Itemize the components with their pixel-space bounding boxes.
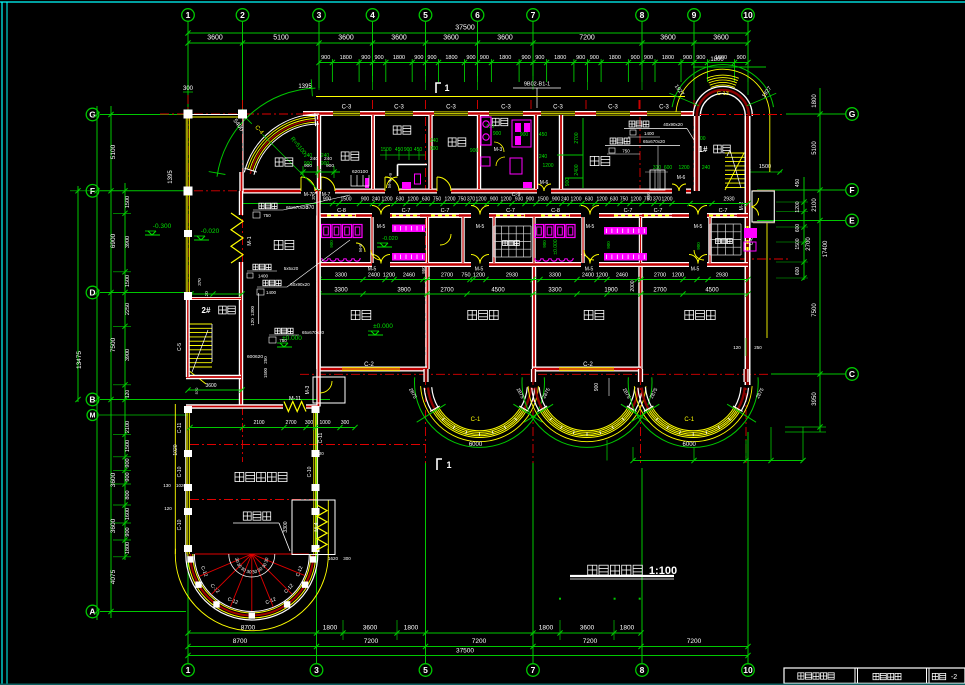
svg-text:1200: 1200 [444,197,455,203]
svg-text:M-1: M-1 [247,236,253,245]
svg-text:3300: 3300 [335,273,347,279]
svg-text:C-3: C-3 [394,105,404,111]
svg-text:3300: 3300 [283,521,289,532]
svg-text:630: 630 [610,197,619,203]
svg-text:900: 900 [430,146,439,152]
svg-text:±0.000: ±0.000 [553,239,559,254]
svg-text:3900: 3900 [125,236,131,248]
svg-text:6000: 6000 [683,442,697,448]
svg-text:240: 240 [702,165,711,171]
svg-text:900: 900 [535,55,544,61]
svg-text:240: 240 [539,154,548,160]
svg-text:40x90x20: 40x90x20 [663,122,683,127]
svg-text:370: 370 [467,197,476,203]
svg-text:M-6: M-6 [358,244,363,252]
svg-text:1800: 1800 [499,55,511,61]
svg-text:1200: 1200 [383,273,395,279]
svg-text:1800: 1800 [812,94,818,108]
svg-text:900: 900 [404,147,413,153]
svg-text:4500: 4500 [705,288,719,294]
svg-text:630: 630 [585,197,594,203]
svg-text:1: 1 [446,460,451,470]
svg-text:600620: 600620 [247,354,263,360]
svg-text:1: 1 [186,10,191,20]
svg-text:G: G [849,109,856,119]
svg-text:2100: 2100 [253,420,264,426]
svg-text:5x5x20: 5x5x20 [284,266,299,271]
svg-text:800: 800 [125,490,131,499]
svg-text:1800: 1800 [340,55,352,61]
svg-text:1800: 1800 [393,55,405,61]
svg-text:C-3: C-3 [608,105,618,111]
svg-text:240: 240 [304,153,313,159]
svg-text:C-3: C-3 [659,105,669,111]
svg-text:1500: 1500 [125,275,131,287]
svg-text:6900: 6900 [110,233,117,248]
svg-text:930: 930 [515,197,524,203]
svg-text:C-10: C-10 [177,519,183,530]
svg-text:1800: 1800 [404,625,419,632]
svg-text:C-7: C-7 [719,208,728,214]
svg-text:C: C [849,369,855,379]
svg-text:900: 900 [522,55,531,61]
svg-text:2930: 2930 [716,273,728,279]
svg-text:1020: 1020 [173,444,179,455]
svg-text:240: 240 [372,197,381,203]
svg-text:2930: 2930 [723,197,734,203]
svg-text:4075: 4075 [110,569,117,584]
svg-text:750: 750 [263,213,271,218]
svg-text:C-8: C-8 [551,208,560,214]
svg-text:1500: 1500 [263,367,268,378]
svg-text:1500: 1500 [340,197,351,203]
svg-text:1800: 1800 [609,55,621,61]
svg-text:900: 900 [490,197,499,203]
svg-text:2930: 2930 [506,273,518,279]
svg-text:2250: 2250 [125,303,131,315]
svg-text:900: 900 [466,55,475,61]
svg-text:7200: 7200 [364,638,379,645]
svg-text:3600: 3600 [110,472,117,487]
svg-text:300: 300 [343,556,351,561]
svg-text:9B02-B1-1: 9B02-B1-1 [524,82,550,88]
svg-text:1200: 1200 [672,273,684,279]
svg-text:3900: 3900 [397,288,411,294]
svg-text:900: 900 [493,131,502,137]
svg-text:1800: 1800 [125,542,131,554]
svg-text:450: 450 [539,132,548,138]
svg-text:M-3: M-3 [305,385,311,394]
svg-text:3600: 3600 [205,383,216,389]
svg-text:5100: 5100 [110,144,117,159]
svg-text:3600: 3600 [207,35,223,42]
svg-text:2400: 2400 [368,273,380,279]
svg-text:3900: 3900 [125,349,131,361]
svg-text:120: 120 [125,390,131,399]
svg-text:M-6: M-6 [677,175,686,181]
svg-text:M-5: M-5 [694,224,703,230]
svg-text:10: 10 [743,10,753,20]
svg-text:3300: 3300 [549,273,561,279]
svg-text:1200: 1200 [407,197,418,203]
svg-text:900: 900 [542,240,547,248]
svg-text:600: 600 [795,267,801,276]
svg-text:65x670x20: 65x670x20 [643,139,666,144]
svg-text:3300: 3300 [334,288,348,294]
svg-text:3600: 3600 [391,35,407,42]
svg-text:900: 900 [644,55,653,61]
svg-text:900: 900 [361,55,370,61]
svg-text:3600: 3600 [660,35,676,42]
svg-text:M-5: M-5 [377,224,386,230]
svg-text:900: 900 [594,383,600,392]
svg-text:C-7: C-7 [654,208,663,214]
svg-text:900: 900 [125,472,131,481]
svg-text:C-7: C-7 [506,208,515,214]
svg-text:M-6: M-6 [540,180,549,186]
svg-text:2700: 2700 [806,237,812,251]
svg-text:900: 900 [321,161,330,167]
svg-text:1200: 1200 [596,197,607,203]
svg-text:2700: 2700 [440,288,454,294]
svg-text:A: A [89,607,95,617]
svg-text:1620: 1620 [328,556,339,561]
svg-text:C-11: C-11 [177,423,183,434]
svg-text:-0.020: -0.020 [382,236,398,242]
svg-text:17400: 17400 [823,240,829,257]
svg-text:300: 300 [183,86,194,92]
svg-text:900: 900 [696,242,701,250]
svg-text:2460: 2460 [403,273,415,279]
svg-text:1900: 1900 [604,288,618,294]
svg-text:1: 1 [444,83,449,93]
svg-text:1600: 1600 [125,508,131,520]
svg-text:M-9: M-9 [388,173,393,181]
svg-text:2100: 2100 [125,421,131,433]
svg-text:1500: 1500 [125,196,131,208]
svg-text:2100: 2100 [812,198,818,212]
svg-text:120: 120 [164,506,172,511]
svg-text:900: 900 [590,55,599,61]
svg-text:370: 370 [653,197,662,203]
svg-text:C-10: C-10 [177,466,183,477]
svg-text:1500: 1500 [795,238,801,249]
svg-text:2: 2 [240,10,245,20]
svg-text:3600: 3600 [110,518,117,533]
svg-text:G: G [89,110,96,120]
svg-text:240: 240 [561,197,570,203]
svg-text:3600: 3600 [580,625,595,632]
svg-text:7: 7 [531,10,536,20]
svg-text:C-8: C-8 [337,208,346,214]
svg-text:65x670x20: 65x670x20 [302,330,325,335]
svg-text:C-13: C-13 [717,91,729,97]
svg-text:C-1: C-1 [471,417,481,423]
svg-text:7200: 7200 [687,638,702,645]
svg-text:900: 900 [565,178,571,187]
svg-text:5100: 5100 [812,141,818,155]
svg-text:3: 3 [314,665,319,675]
svg-text:C-3: C-3 [553,105,563,111]
svg-text:6000: 6000 [469,442,483,448]
svg-text:900: 900 [321,55,330,61]
svg-text:-0.020: -0.020 [201,228,220,235]
svg-text:-0.300: -0.300 [153,223,172,230]
svg-text:4: 4 [370,10,375,20]
svg-text:1020: 1020 [176,483,187,488]
svg-text:M: M [90,413,96,420]
svg-text:900: 900 [683,55,692,61]
svg-text:5: 5 [423,665,428,675]
svg-text:9: 9 [692,10,697,20]
svg-text:13475: 13475 [76,351,83,369]
svg-text:7500: 7500 [812,303,818,317]
svg-text:900: 900 [414,55,423,61]
svg-text:1: 1 [186,665,191,675]
svg-text:C-11: C-11 [318,433,324,444]
svg-text:1200: 1200 [661,197,672,203]
svg-text:450: 450 [414,147,423,153]
svg-text:7200: 7200 [579,35,595,42]
svg-text:7: 7 [531,665,536,675]
svg-text:900: 900 [520,132,529,138]
svg-text:2460: 2460 [616,273,628,279]
svg-text:120: 120 [733,345,741,350]
svg-text:1500: 1500 [125,440,131,452]
svg-text:250: 250 [754,345,762,350]
svg-text:6: 6 [475,10,480,20]
svg-text:1800: 1800 [323,625,338,632]
svg-text:C-7: C-7 [441,208,450,214]
svg-text:900: 900 [329,240,334,248]
svg-text:900: 900 [470,148,479,154]
svg-text:C-2: C-2 [364,362,374,368]
svg-text:M-11: M-11 [289,396,301,402]
svg-text:37500: 37500 [455,25,475,32]
svg-text:300: 300 [305,420,314,426]
svg-text:620100: 620100 [352,169,368,175]
svg-text:1800: 1800 [662,55,674,61]
svg-text:F: F [849,185,854,195]
svg-text:300: 300 [341,420,350,426]
svg-text:C-3: C-3 [446,105,456,111]
svg-text:C-1: C-1 [684,417,694,423]
svg-text:900: 900 [576,55,585,61]
svg-text:950: 950 [421,266,426,274]
svg-text:1300: 1300 [250,305,255,316]
svg-text:8700: 8700 [233,638,248,645]
svg-text:3950: 3950 [812,392,818,406]
svg-text:1200: 1200 [596,273,608,279]
svg-text:C-3: C-3 [342,105,352,111]
svg-text:1800: 1800 [710,57,724,63]
svg-text:600: 600 [795,224,801,233]
svg-text:900: 900 [125,527,131,536]
svg-text:3300: 3300 [548,288,562,294]
svg-text:E: E [849,216,855,226]
svg-text:5: 5 [423,10,428,20]
svg-text:5100: 5100 [273,35,289,42]
svg-text:3600: 3600 [338,35,354,42]
svg-text:1500: 1500 [759,164,771,170]
svg-text:3600: 3600 [497,35,513,42]
svg-text:7500: 7500 [110,337,117,352]
svg-text:900: 900 [375,55,384,61]
svg-text:900: 900 [304,161,313,167]
svg-text:750: 750 [461,273,470,279]
svg-text:7200: 7200 [472,638,487,645]
svg-text:M-4: M-4 [314,522,320,531]
svg-text:B: B [89,395,95,405]
svg-text:65x670x20: 65x670x20 [286,205,309,210]
svg-text:900: 900 [427,55,436,61]
svg-text:7200: 7200 [583,638,598,645]
svg-text:900: 900 [631,55,640,61]
svg-text:750: 750 [622,149,630,154]
svg-text:10: 10 [743,665,753,675]
svg-text:M-3: M-3 [494,147,503,153]
svg-text:1800: 1800 [620,625,635,632]
svg-text:130: 130 [163,483,171,488]
svg-text:C-5: C-5 [177,343,183,351]
svg-text:750: 750 [620,197,629,203]
svg-text:M-5: M-5 [476,224,485,230]
svg-text:50x90x20: 50x90x20 [290,282,310,287]
svg-text:120: 120 [250,318,255,326]
svg-text:900: 900 [480,55,489,61]
svg-text:370: 370 [311,192,316,200]
svg-text:M-5: M-5 [586,224,595,230]
svg-text:900: 900 [737,55,746,61]
svg-text:1395: 1395 [168,170,174,184]
svg-text:240: 240 [430,138,439,144]
svg-text:M-2: M-2 [739,201,745,210]
svg-text:1200: 1200 [542,163,553,169]
svg-text:C-7: C-7 [624,208,633,214]
svg-text:900: 900 [125,458,131,467]
svg-text:D: D [89,288,95,298]
svg-text:3600: 3600 [443,35,459,42]
svg-text:2700: 2700 [654,273,666,279]
svg-text:630: 630 [396,197,405,203]
svg-text:3: 3 [317,10,322,20]
svg-text:950: 950 [646,192,651,200]
svg-text:900: 900 [361,197,370,203]
svg-text:630: 630 [422,197,431,203]
svg-text:1000: 1000 [319,420,330,426]
svg-text:2400: 2400 [582,273,594,279]
svg-text:1200: 1200 [678,165,689,171]
svg-text:370: 370 [197,278,202,286]
svg-text:2000: 2000 [630,280,636,291]
svg-text:250: 250 [263,356,268,364]
svg-text:120: 120 [316,451,324,456]
svg-text:-2: -2 [951,674,957,681]
svg-text:450: 450 [795,179,801,188]
svg-text:570: 570 [194,387,199,394]
svg-text:900: 900 [606,241,611,249]
svg-text:3600: 3600 [713,35,729,42]
svg-text:240: 240 [321,153,330,159]
svg-text:C-7: C-7 [402,208,411,214]
svg-text:C-3: C-3 [501,105,511,111]
svg-text:1400: 1400 [266,290,277,295]
svg-text:8: 8 [640,10,645,20]
svg-text:750: 750 [279,338,287,343]
svg-text:1400: 1400 [258,274,269,279]
svg-text:8: 8 [640,665,645,675]
svg-text:4500: 4500 [491,288,505,294]
svg-text:1800: 1800 [539,625,554,632]
svg-text:900: 900 [696,55,705,61]
svg-text:750: 750 [458,197,467,203]
svg-text:±0.000: ±0.000 [373,323,393,330]
svg-text:2700: 2700 [441,273,453,279]
svg-text:2700: 2700 [285,420,296,426]
svg-text:2400: 2400 [574,164,580,175]
svg-text:1800: 1800 [554,55,566,61]
svg-text:1400: 1400 [644,131,655,136]
svg-text:1800: 1800 [445,55,457,61]
svg-text:1500: 1500 [537,197,548,203]
svg-text:C-10: C-10 [307,466,313,477]
svg-text:C-2: C-2 [583,362,593,368]
svg-text:2700: 2700 [574,132,580,143]
svg-text:900: 900 [552,197,561,203]
svg-text:2700: 2700 [653,288,667,294]
svg-text:M-5: M-5 [691,267,700,273]
svg-text:1200: 1200 [795,201,801,212]
svg-text:37500: 37500 [456,648,474,655]
svg-text:3600: 3600 [363,625,378,632]
svg-text:2#: 2# [202,306,211,315]
svg-text:1#: 1# [699,145,708,154]
